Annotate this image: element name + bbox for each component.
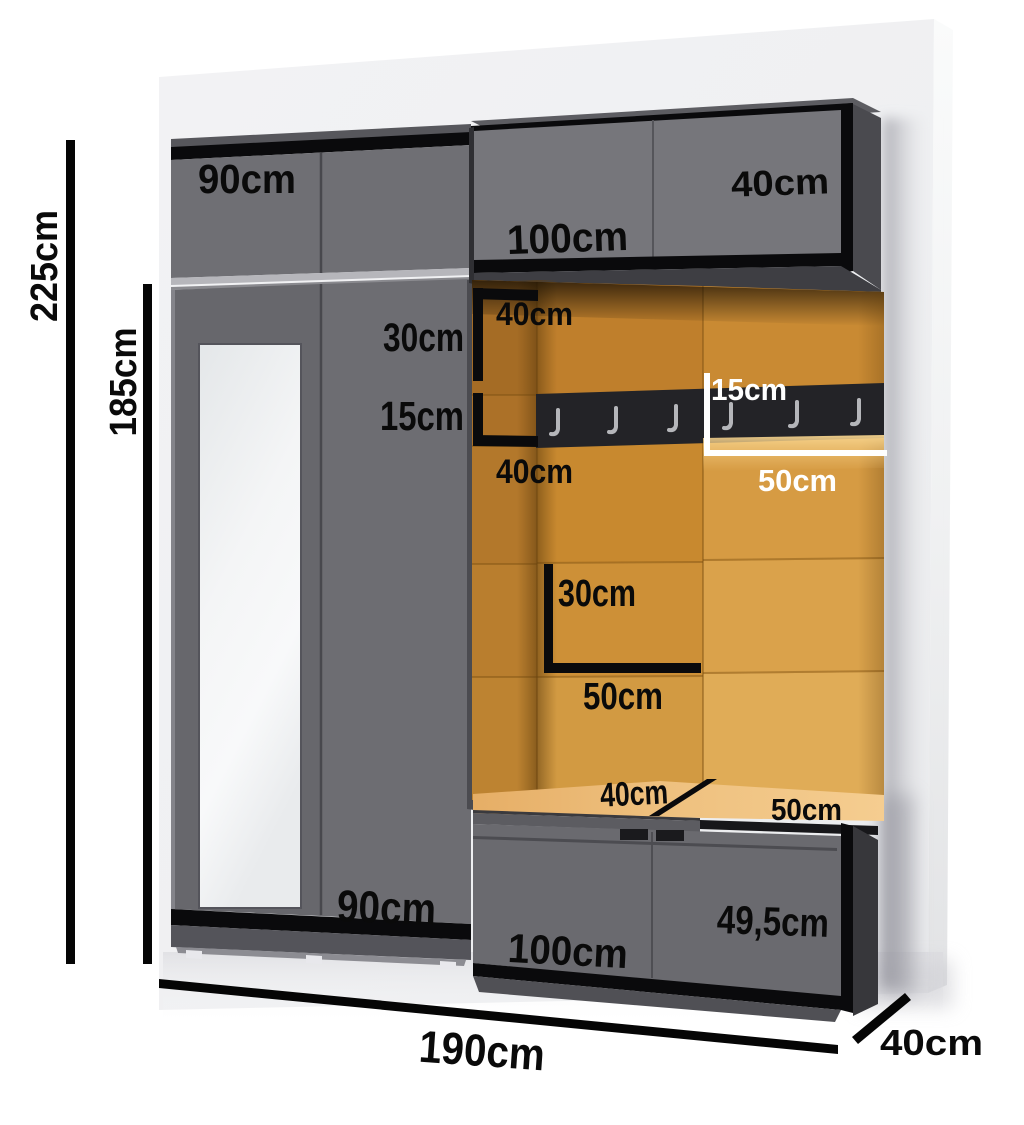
svg-text:15cm: 15cm [380, 393, 464, 439]
svg-text:100cm: 100cm [506, 213, 629, 263]
svg-text:40cm: 40cm [599, 773, 669, 815]
svg-text:30cm: 30cm [383, 316, 464, 360]
svg-text:90cm: 90cm [336, 880, 437, 934]
svg-text:50cm: 50cm [583, 676, 663, 718]
svg-text:90cm: 90cm [198, 156, 296, 202]
svg-text:40cm: 40cm [730, 160, 829, 204]
svg-text:100cm: 100cm [507, 925, 629, 977]
svg-text:15cm: 15cm [711, 372, 787, 407]
svg-text:185cm: 185cm [103, 328, 145, 437]
svg-text:50cm: 50cm [758, 463, 837, 498]
svg-text:40cm: 40cm [496, 453, 573, 491]
svg-text:50cm: 50cm [771, 792, 842, 827]
svg-text:225cm: 225cm [24, 210, 66, 322]
svg-text:30cm: 30cm [558, 573, 636, 615]
svg-text:49,5cm: 49,5cm [716, 898, 829, 946]
svg-text:40cm: 40cm [496, 296, 573, 332]
svg-text:190cm: 190cm [417, 1021, 546, 1081]
svg-text:40cm: 40cm [880, 1022, 983, 1063]
